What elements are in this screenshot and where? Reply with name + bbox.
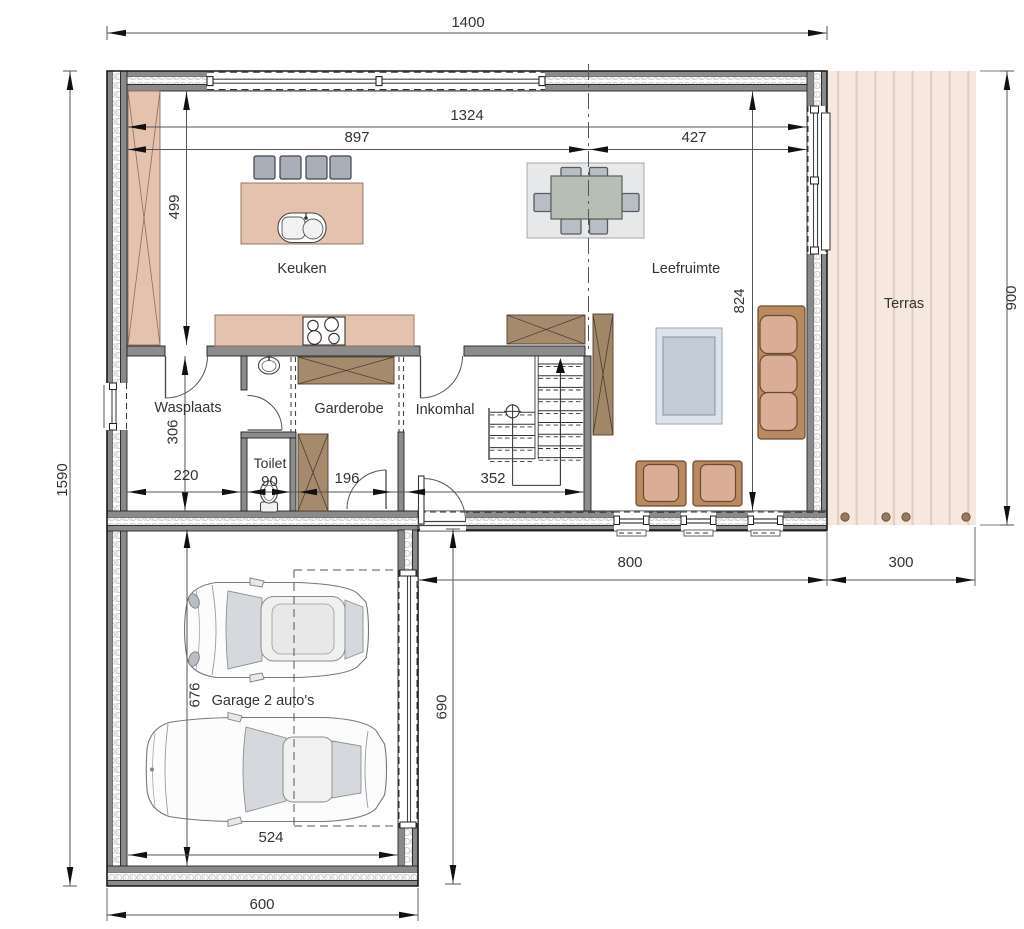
svg-text:1400: 1400 [451,14,484,31]
svg-text:220: 220 [173,467,198,484]
svg-text:824: 824 [731,288,748,313]
svg-text:1324: 1324 [450,107,483,124]
svg-text:Leefruimte: Leefruimte [652,261,721,277]
svg-text:900: 900 [1003,285,1020,310]
svg-text:690: 690 [434,694,451,719]
svg-text:524: 524 [258,829,283,846]
svg-text:Garderobe: Garderobe [314,401,383,417]
svg-text:Wasplaats: Wasplaats [154,400,221,416]
svg-text:600: 600 [249,896,274,913]
svg-text:Toilet: Toilet [254,455,287,471]
svg-text:499: 499 [166,194,183,219]
svg-text:306: 306 [165,419,182,444]
svg-text:300: 300 [888,554,913,571]
svg-text:Garage 2 auto's: Garage 2 auto's [212,693,315,709]
svg-text:1590: 1590 [54,463,71,496]
svg-text:Terras: Terras [884,296,924,312]
svg-text:427: 427 [681,129,706,146]
svg-text:897: 897 [344,129,369,146]
svg-text:676: 676 [187,682,204,707]
svg-text:90: 90 [261,473,278,490]
svg-text:196: 196 [334,470,359,487]
svg-text:800: 800 [617,554,642,571]
svg-text:352: 352 [480,470,505,487]
svg-text:Keuken: Keuken [277,261,326,277]
svg-text:Inkomhal: Inkomhal [416,402,475,418]
